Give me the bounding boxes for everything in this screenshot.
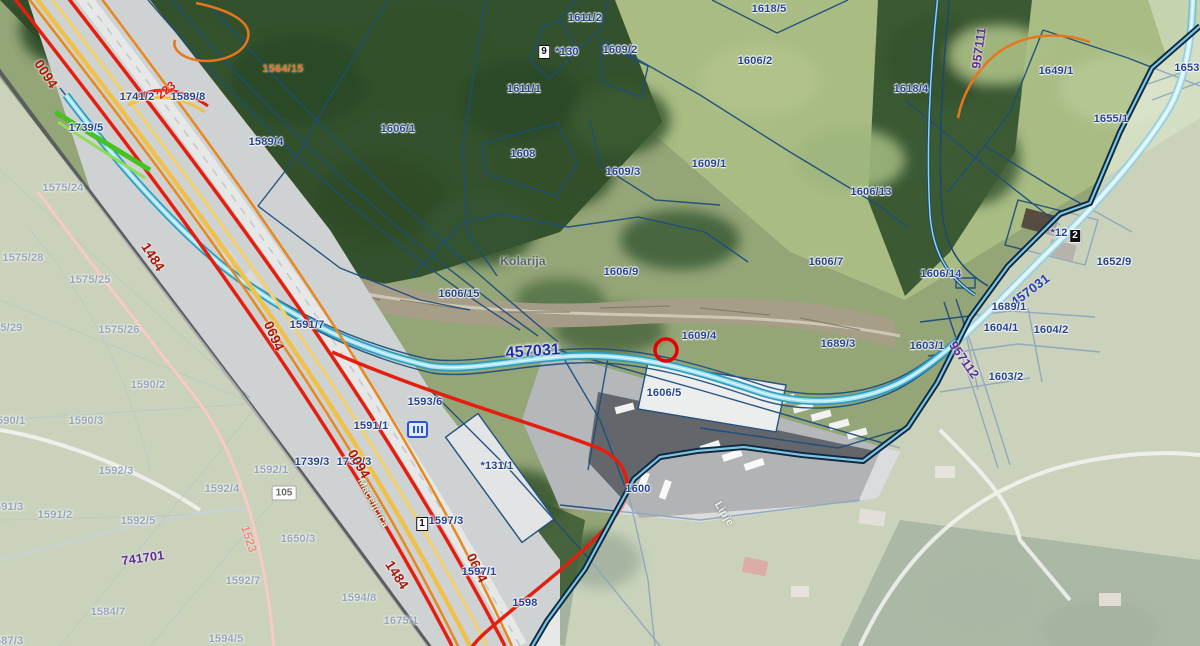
map-canvas[interactable]: 00941741/22231589/81739/51589/41564/1515… [0, 0, 1200, 646]
aerial-map-graphics [0, 0, 1200, 646]
bridge-icon [407, 421, 428, 438]
